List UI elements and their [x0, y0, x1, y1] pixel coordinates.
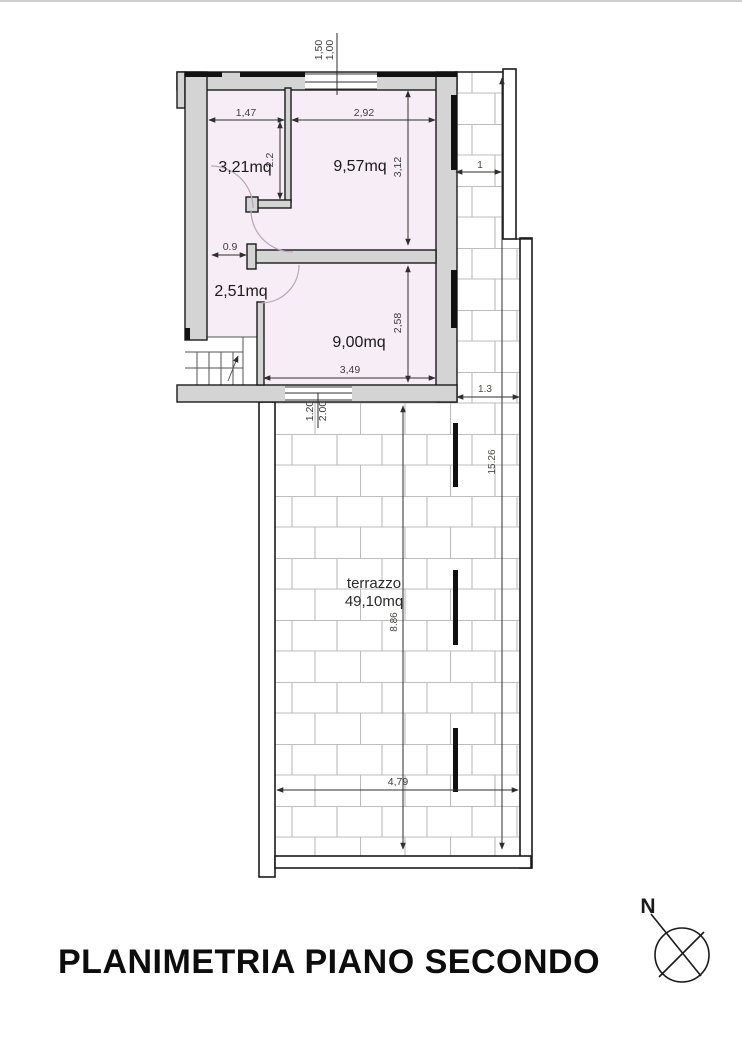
dim-label-120: 1.20 [304, 401, 316, 422]
dim-label-200: 2.00 [317, 401, 329, 422]
balcony-parapet-upper [503, 69, 516, 239]
wall-left [185, 72, 207, 340]
wall-top-left-pilaster [177, 72, 185, 108]
french-window-bottom-right [451, 270, 457, 328]
dim-label-258: 2,58 [392, 313, 404, 334]
room-label-900: 9,00mq [332, 334, 385, 351]
wall-partition-a [285, 88, 291, 202]
dim-label-1526: 15.26 [487, 449, 498, 474]
dim-label-479: 4,79 [388, 776, 409, 788]
wall-corridor [250, 250, 436, 263]
wall-partition-b [257, 302, 264, 385]
staircase [185, 337, 257, 385]
terrace-area-label: 49,10mq [345, 593, 403, 610]
french-window-top-right [451, 95, 457, 170]
dim-label-09: 0.9 [223, 241, 238, 253]
floor-plan-canvas: 1,50 1,00 1,47 2,92 2.2 3,12 0.9 2,58 3,… [0, 0, 742, 1050]
terrace-parapet-right [520, 238, 532, 868]
terrace-parapet-left [259, 402, 275, 877]
wall-corridor-cap [247, 244, 256, 269]
dim-label-312: 3,12 [392, 157, 404, 178]
terrace-railing-bars [453, 423, 458, 792]
compass: N [640, 895, 709, 982]
room-label-251: 2,51mq [214, 283, 267, 300]
dim-label-100: 1,00 [324, 40, 336, 61]
terrace-name-label: terrazzo [347, 575, 401, 592]
dim-label-886: 8.86 [389, 612, 400, 632]
page-top-border [0, 0, 742, 2]
room-label-321: 3,21mq [218, 159, 271, 176]
north-label: N [640, 895, 655, 918]
dim-label-147: 1,47 [236, 107, 257, 119]
terrace-parapet-bottom [275, 856, 531, 868]
dim-label-13: 1.3 [478, 384, 492, 395]
room-label-957: 9,57mq [333, 158, 386, 175]
plan-title: PLANIMETRIA PIANO SECONDO [58, 943, 600, 981]
dim-label-292: 2,92 [354, 107, 375, 119]
dim-label-1: 1 [477, 160, 483, 171]
dim-label-349: 3,49 [340, 364, 361, 376]
